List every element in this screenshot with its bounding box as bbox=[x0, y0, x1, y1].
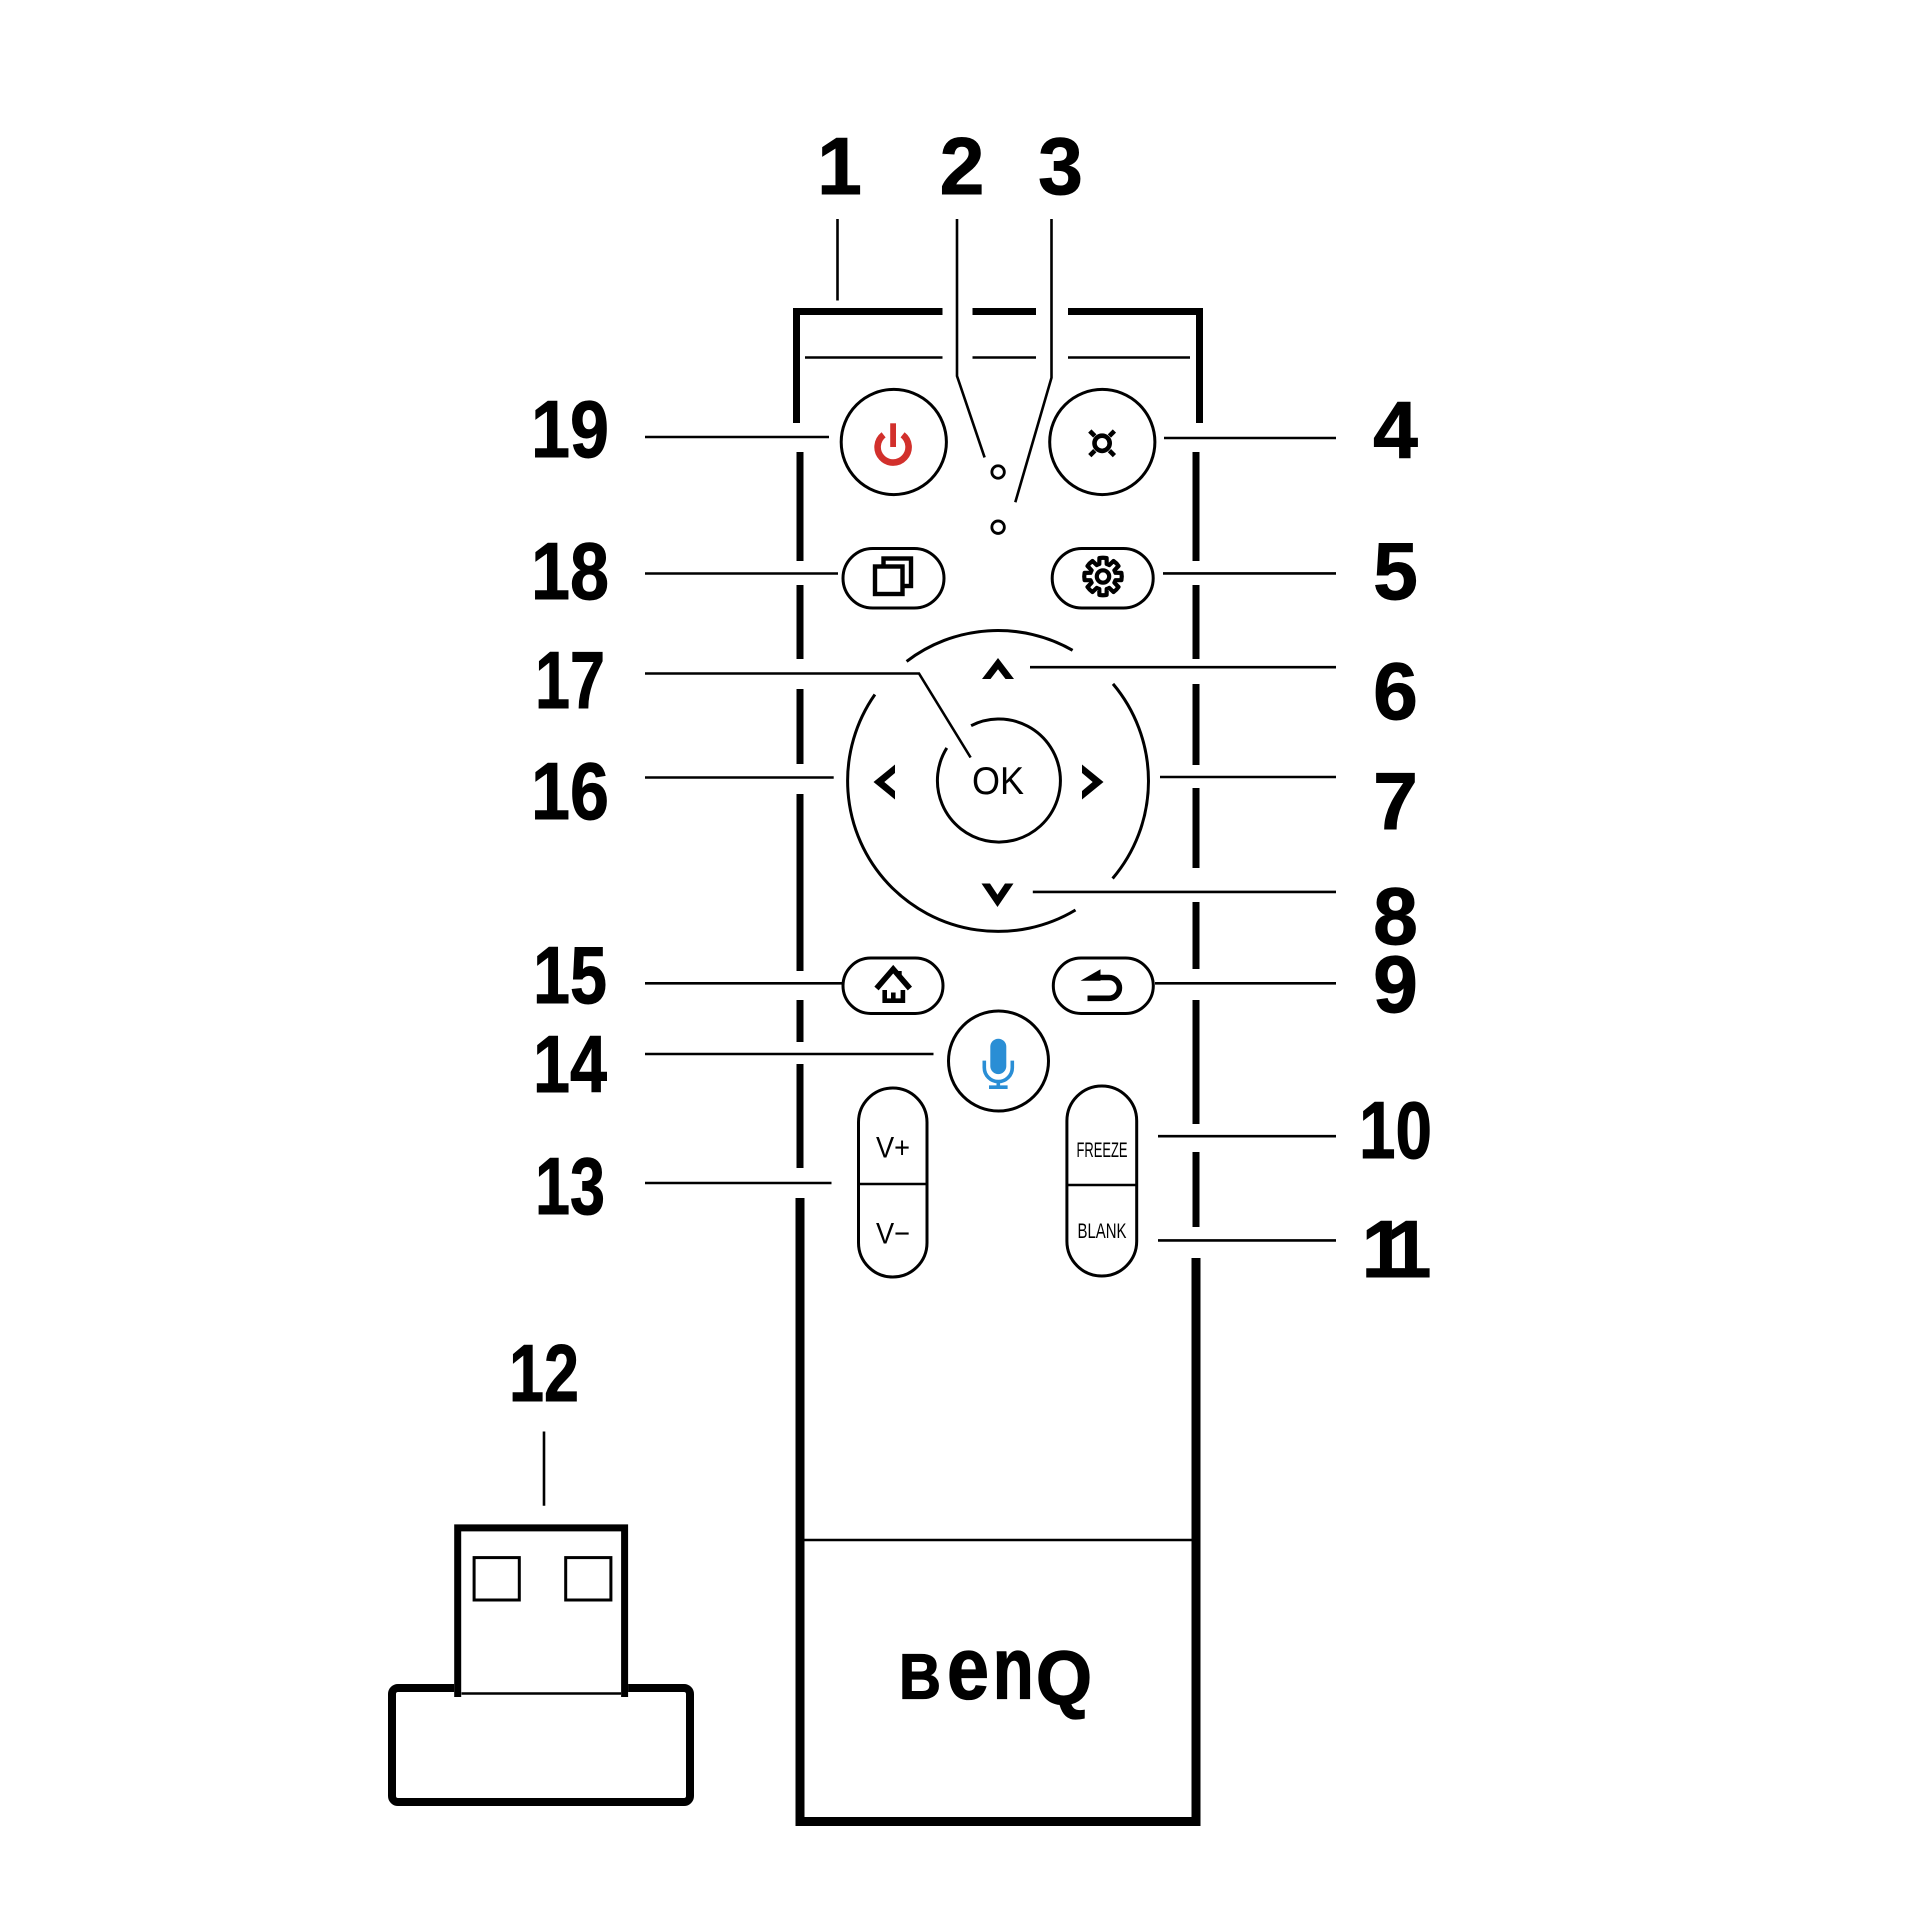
svg-text:n: n bbox=[993, 1618, 1034, 1717]
svg-text:13: 13 bbox=[535, 1142, 605, 1232]
svg-text:V+: V+ bbox=[876, 1132, 910, 1165]
svg-text:12: 12 bbox=[509, 1329, 579, 1419]
svg-text:Q: Q bbox=[1036, 1636, 1092, 1721]
svg-text:18: 18 bbox=[531, 527, 609, 617]
svg-text:1: 1 bbox=[817, 122, 862, 212]
svg-text:BLANK: BLANK bbox=[1078, 1220, 1127, 1243]
svg-text:5: 5 bbox=[1373, 527, 1418, 617]
svg-text:1: 1 bbox=[1387, 1205, 1432, 1295]
svg-text:e: e bbox=[947, 1618, 989, 1717]
svg-text:3: 3 bbox=[1038, 122, 1083, 212]
svg-text:16: 16 bbox=[531, 747, 609, 837]
svg-text:7: 7 bbox=[1373, 757, 1418, 847]
svg-text:B: B bbox=[899, 1640, 941, 1712]
svg-text:19: 19 bbox=[531, 385, 609, 475]
svg-text:4: 4 bbox=[1373, 386, 1418, 476]
svg-text:FREEZE: FREEZE bbox=[1077, 1139, 1128, 1162]
svg-text:17: 17 bbox=[535, 636, 605, 726]
svg-text:OK: OK bbox=[972, 760, 1024, 803]
svg-text:2: 2 bbox=[940, 122, 985, 212]
svg-text:6: 6 bbox=[1373, 647, 1418, 737]
svg-text:14: 14 bbox=[533, 1020, 607, 1110]
svg-text:10: 10 bbox=[1359, 1086, 1432, 1176]
svg-text:V−: V− bbox=[876, 1218, 910, 1251]
svg-text:9: 9 bbox=[1373, 940, 1418, 1030]
svg-text:15: 15 bbox=[533, 931, 607, 1021]
